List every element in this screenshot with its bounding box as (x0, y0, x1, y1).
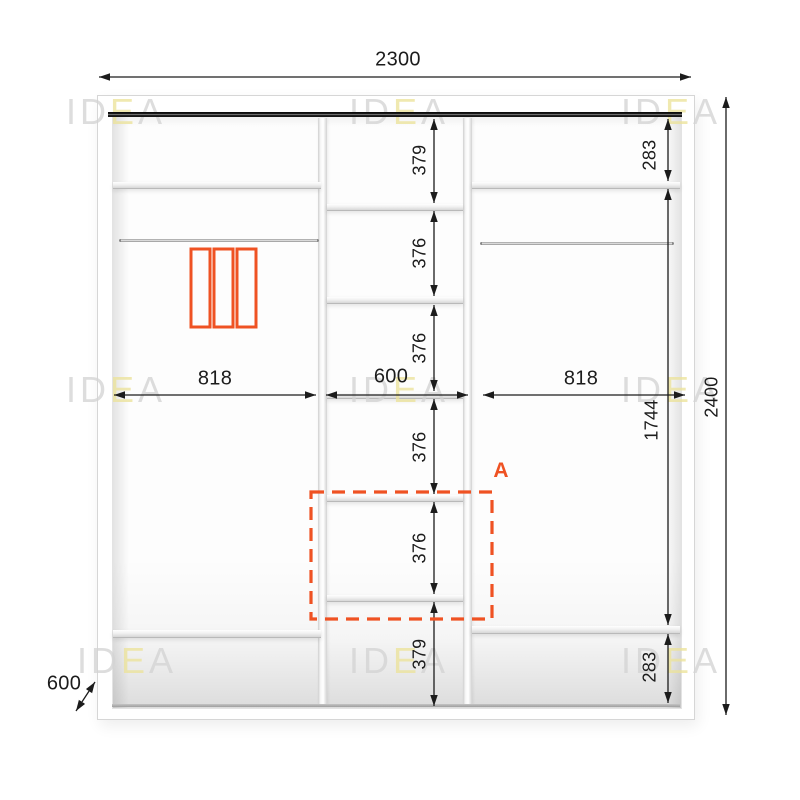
dim-total-height-label: 2400 (702, 376, 723, 417)
section-a-highlight-outline (311, 492, 492, 619)
dim-middle-section-6-label: 379 (410, 639, 431, 670)
section-a-label: A (493, 459, 508, 483)
dim-right-top-label: 283 (640, 140, 661, 171)
dim-right-bottom-label: 283 (640, 652, 661, 683)
hanging-clothes-icon (191, 249, 256, 327)
dim-right-width-label: 818 (564, 368, 598, 391)
dimension-lines-layer (0, 0, 800, 800)
dim-middle-section-1-label: 379 (410, 145, 431, 176)
wardrobe-diagram: IDEA IDEA IDEA IDEA IDEA IDEA IDEA IDEA … (0, 0, 800, 800)
dim-middle-section-4-label: 376 (410, 432, 431, 463)
dim-middle-section-5-label: 376 (410, 533, 431, 564)
dim-depth-label: 600 (47, 673, 81, 696)
dim-middle-section-3-label: 376 (410, 333, 431, 364)
dim-middle-width-label: 600 (374, 366, 408, 389)
dim-left-width-label: 818 (198, 368, 232, 391)
dim-middle-section-2-label: 376 (410, 238, 431, 269)
dim-total-width-label: 2300 (375, 49, 421, 72)
dim-right-hanging-label: 1744 (642, 399, 663, 440)
